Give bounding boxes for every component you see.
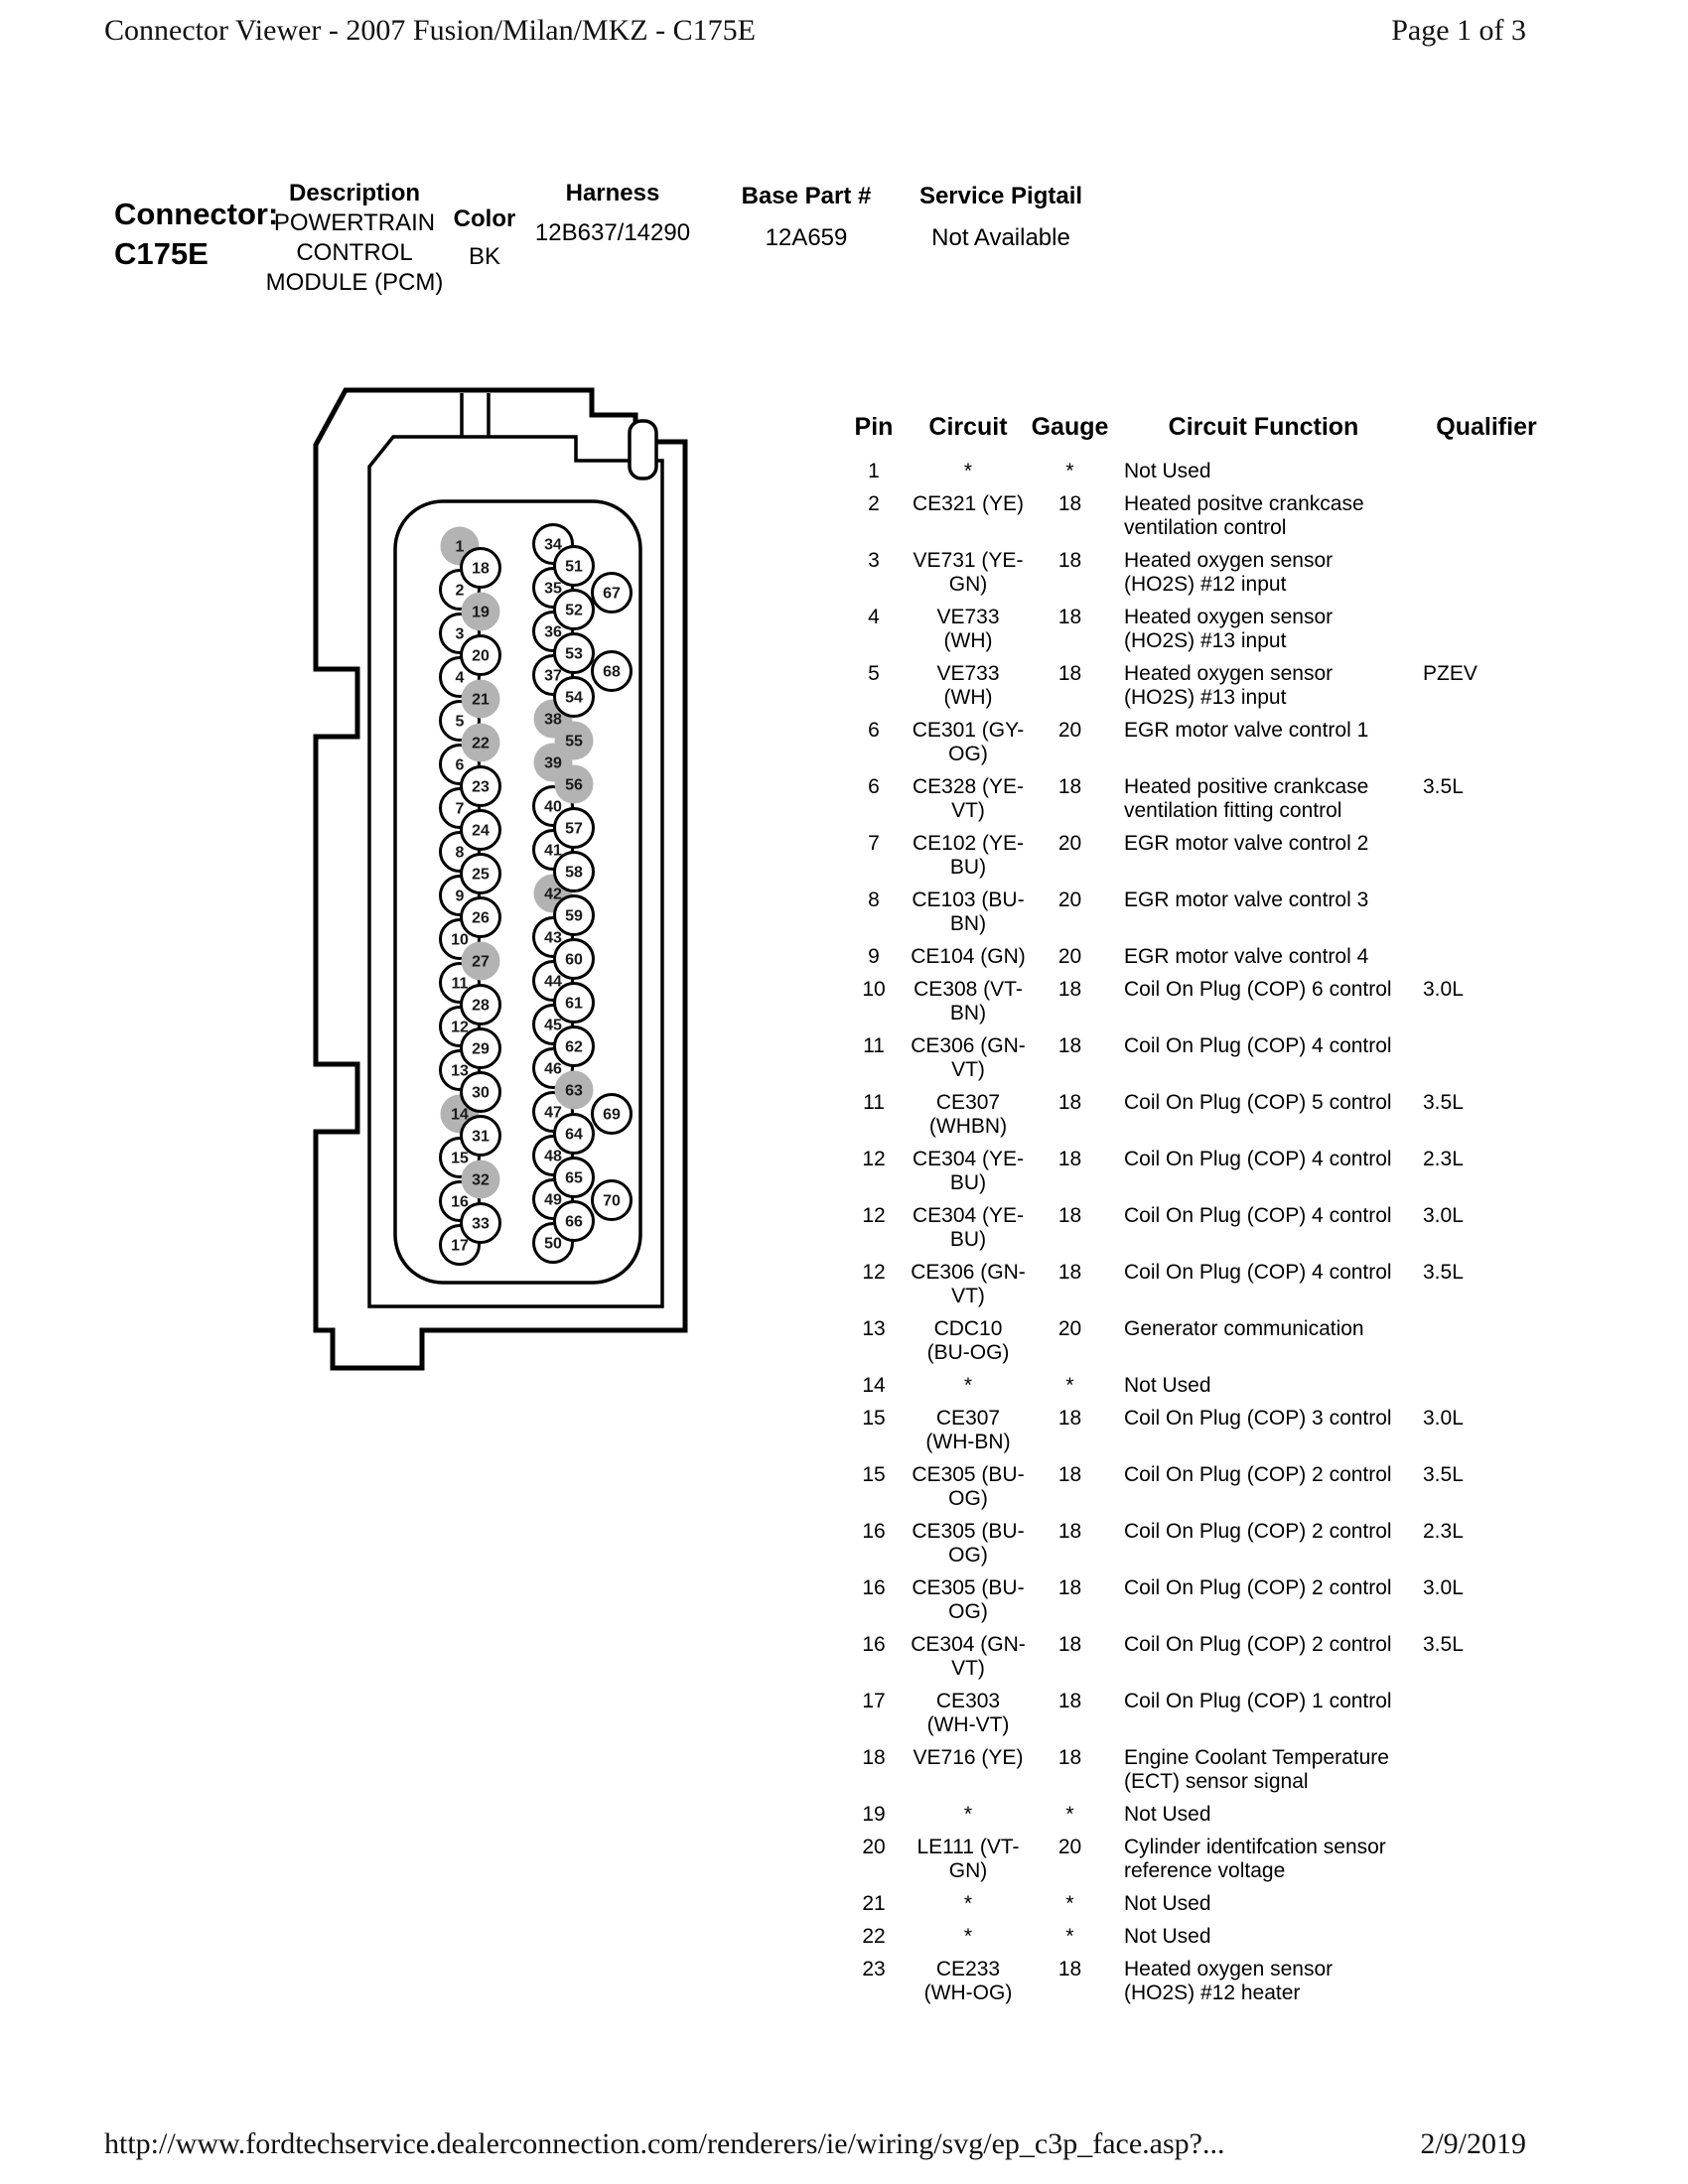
function-cell: EGR motor valve control 4 [1112, 945, 1415, 969]
function-cell: Engine Coolant Temperature (ECT) sensor … [1112, 1746, 1415, 1794]
qualifier-cell [1415, 1803, 1558, 1827]
pin-cell: 11 [839, 1091, 909, 1139]
table-row: 11CE307 (WHBN)18Coil On Plug (COP) 5 con… [839, 1091, 1558, 1139]
pin-54: 54 [555, 678, 594, 717]
pin-cell: 16 [839, 1576, 909, 1624]
pin-60: 60 [555, 940, 594, 979]
table-row: 10CE308 (VT-BN)18Coil On Plug (COP) 6 co… [839, 978, 1558, 1025]
circuit-cell: * [909, 1803, 1028, 1827]
pin-9-number: 9 [456, 888, 465, 905]
pin-63-number: 63 [565, 1083, 583, 1100]
gauge-cell: 20 [1028, 719, 1112, 766]
pin-cell: 16 [839, 1633, 909, 1681]
function-cell: Heated oxygen sensor (HO2S) #13 input [1112, 606, 1415, 653]
table-row: 3VE731 (YE-GN)18Heated oxygen sensor (HO… [839, 549, 1558, 597]
pin-64: 64 [555, 1115, 594, 1154]
pin-12-number: 12 [451, 1020, 469, 1036]
pin-cell: 14 [839, 1374, 909, 1398]
pin-37-number: 37 [544, 668, 562, 685]
function-cell: EGR motor valve control 2 [1112, 832, 1415, 880]
qualifier-cell [1415, 1892, 1558, 1916]
circuit-cell: CE305 (BU-OG) [909, 1463, 1028, 1511]
pin-68-number: 68 [603, 664, 621, 681]
table-row: 21**Not Used [839, 1892, 1558, 1916]
pin-43-number: 43 [544, 930, 562, 947]
print-footer-date: 2/9/2019 [1420, 2127, 1526, 2161]
table-row: 4VE733 (WH)18Heated oxygen sensor (HO2S)… [839, 606, 1558, 653]
pin-cell: 11 [839, 1034, 909, 1082]
pin-35-number: 35 [544, 581, 562, 598]
pin-1-number: 1 [456, 539, 465, 556]
pin-cell: 4 [839, 606, 909, 653]
pin-cell: 2 [839, 492, 909, 540]
pin-cell: 12 [839, 1261, 909, 1308]
pin-cell: 15 [839, 1463, 909, 1511]
pin-45-number: 45 [544, 1018, 562, 1034]
gauge-cell: 18 [1028, 1148, 1112, 1195]
pin-42-number: 42 [544, 887, 562, 903]
pin-53-number: 53 [565, 646, 583, 663]
pin-50-number: 50 [544, 1236, 562, 1253]
pin-52: 52 [555, 591, 594, 629]
header-qualifier: Qualifier [1415, 413, 1558, 442]
circuit-cell: CE303 (WH-VT) [909, 1690, 1028, 1737]
qualifier-cell [1415, 719, 1558, 766]
table-row: 9CE104 (GN)20EGR motor valve control 4 [839, 945, 1558, 969]
pin-44-number: 44 [544, 974, 562, 991]
qualifier-cell [1415, 549, 1558, 597]
table-row: 19**Not Used [839, 1803, 1558, 1827]
pin-26: 26 [462, 898, 500, 937]
pin-49-number: 49 [544, 1192, 562, 1209]
gauge-cell: 18 [1028, 775, 1112, 823]
circuit-cell: CDC10 (BU-OG) [909, 1317, 1028, 1365]
function-cell: Coil On Plug (COP) 2 control [1112, 1520, 1415, 1568]
function-cell: Coil On Plug (COP) 5 control [1112, 1091, 1415, 1139]
table-row: 15CE305 (BU-OG)18Coil On Plug (COP) 2 co… [839, 1463, 1558, 1511]
pin-53: 53 [555, 634, 594, 673]
pin-16-number: 16 [451, 1194, 469, 1211]
pin-cell: 15 [839, 1407, 909, 1454]
gauge-cell: 20 [1028, 945, 1112, 969]
table-row: 6CE328 (YE-VT)18Heated positive crankcas… [839, 775, 1558, 823]
qualifier-cell: 2.3L [1415, 1148, 1558, 1195]
pin-cell: 10 [839, 978, 909, 1025]
gauge-cell: 18 [1028, 1463, 1112, 1511]
circuit-cell: CE304 (YE-BU) [909, 1148, 1028, 1195]
pin-20: 20 [462, 636, 500, 675]
pin-55: 55 [555, 722, 594, 760]
function-cell: Coil On Plug (COP) 4 control [1112, 1261, 1415, 1308]
circuit-cell: VE731 (YE-GN) [909, 549, 1028, 597]
pin-cell: 13 [839, 1317, 909, 1365]
pin-29: 29 [462, 1029, 500, 1068]
circuit-cell: CE307 (WH-BN) [909, 1407, 1028, 1454]
table-row: 12CE306 (GN-VT)18Coil On Plug (COP) 4 co… [839, 1261, 1558, 1308]
pin-32: 32 [462, 1160, 500, 1199]
function-cell: Heated oxygen sensor (HO2S) #13 input [1112, 662, 1415, 710]
header-pin: Pin [839, 413, 909, 442]
qualifier-cell [1415, 1746, 1558, 1794]
pin-54-number: 54 [565, 690, 583, 707]
header-gauge: Gauge [1028, 413, 1112, 442]
pin-cell: 12 [839, 1204, 909, 1252]
circuit-cell: CE306 (GN-VT) [909, 1034, 1028, 1082]
pin-68: 68 [593, 652, 632, 691]
gauge-cell: * [1028, 1803, 1112, 1827]
pin-18: 18 [462, 549, 500, 588]
table-row: 23CE233 (WH-OG)18Heated oxygen sensor (H… [839, 1958, 1558, 2005]
pin-65: 65 [555, 1159, 594, 1197]
gauge-cell: 18 [1028, 662, 1112, 710]
pin-51-number: 51 [565, 559, 583, 576]
circuit-cell: * [909, 460, 1028, 483]
function-cell: Not Used [1112, 1374, 1415, 1398]
function-cell: Coil On Plug (COP) 2 control [1112, 1463, 1415, 1511]
table-row: 18VE716 (YE)18Engine Coolant Temperature… [839, 1746, 1558, 1794]
pin-cell: 5 [839, 662, 909, 710]
pin-cell: 3 [839, 549, 909, 597]
qualifier-cell [1415, 1836, 1558, 1883]
function-cell: Coil On Plug (COP) 2 control [1112, 1576, 1415, 1624]
pin-36-number: 36 [544, 624, 562, 641]
function-cell: Heated positve crankcase ventilation con… [1112, 492, 1415, 540]
qualifier-cell: 2.3L [1415, 1520, 1558, 1568]
qualifier-cell [1415, 888, 1558, 936]
gauge-cell: 18 [1028, 1091, 1112, 1139]
pin-66-number: 66 [565, 1214, 583, 1231]
qualifier-cell [1415, 1317, 1558, 1365]
header-circuit: Circuit [909, 413, 1028, 442]
circuit-cell: CE306 (GN-VT) [909, 1261, 1028, 1308]
qualifier-cell [1415, 945, 1558, 969]
pin-3-number: 3 [456, 626, 465, 643]
table-row: 7CE102 (YE-BU)20EGR motor valve control … [839, 832, 1558, 880]
pin-70: 70 [593, 1181, 632, 1220]
qualifier-cell [1415, 1958, 1558, 2005]
circuit-cell: CE304 (GN-VT) [909, 1633, 1028, 1681]
pin-32-number: 32 [472, 1172, 490, 1189]
pin-8-number: 8 [456, 845, 465, 862]
pin-cell: 6 [839, 719, 909, 766]
gauge-cell: 18 [1028, 1690, 1112, 1737]
pin-57-number: 57 [565, 821, 583, 838]
pin-11-number: 11 [452, 976, 469, 993]
function-cell: Cylinder identifcation sensor reference … [1112, 1836, 1415, 1883]
gauge-cell: * [1028, 1892, 1112, 1916]
gauge-cell: 18 [1028, 1261, 1112, 1308]
pin-cell: 17 [839, 1690, 909, 1737]
circuit-cell: CE103 (BU-BN) [909, 888, 1028, 936]
pin-table: Pin Circuit Gauge Circuit Function Quali… [839, 413, 1558, 2014]
table-row: 12CE304 (YE-BU)18Coil On Plug (COP) 4 co… [839, 1204, 1558, 1252]
pin-10-number: 10 [451, 932, 469, 949]
function-cell: Coil On Plug (COP) 6 control [1112, 978, 1415, 1025]
gauge-cell: * [1028, 1374, 1112, 1398]
pin-6-number: 6 [456, 757, 465, 774]
gauge-cell: 18 [1028, 1520, 1112, 1568]
pin-62: 62 [555, 1027, 594, 1066]
circuit-cell: CE233 (WH-OG) [909, 1958, 1028, 2005]
table-row: 13CDC10 (BU-OG)20Generator communication [839, 1317, 1558, 1365]
pin-4-number: 4 [456, 670, 465, 687]
table-row: 20LE111 (VT-GN)20Cylinder identifcation … [839, 1836, 1558, 1883]
print-footer-url: http://www.fordtechservice.dealerconnect… [104, 2127, 1224, 2161]
circuit-cell: CE104 (GN) [909, 945, 1028, 969]
function-cell: Coil On Plug (COP) 4 control [1112, 1148, 1415, 1195]
gauge-cell: 20 [1028, 888, 1112, 936]
pin-2-number: 2 [456, 583, 465, 600]
table-row: 1**Not Used [839, 460, 1558, 483]
pin-55-number: 55 [565, 734, 583, 751]
function-cell: Not Used [1112, 1925, 1415, 1949]
table-row: 17CE303 (WH-VT)18Coil On Plug (COP) 1 co… [839, 1690, 1558, 1737]
function-cell: Not Used [1112, 460, 1415, 483]
function-cell: Heated oxygen sensor (HO2S) #12 heater [1112, 1958, 1415, 2005]
pin-cell: 21 [839, 1892, 909, 1916]
pin-table-body: 1**Not Used2CE321 (YE)18Heated positve c… [839, 460, 1558, 2005]
pin-30-number: 30 [472, 1085, 490, 1102]
qualifier-cell: 3.5L [1415, 1091, 1558, 1139]
gauge-cell: 20 [1028, 832, 1112, 880]
gauge-cell: 18 [1028, 1034, 1112, 1082]
gauge-cell: 18 [1028, 1204, 1112, 1252]
pin-70-number: 70 [603, 1193, 621, 1210]
pin-24-number: 24 [472, 823, 490, 840]
pin-62-number: 62 [565, 1039, 583, 1056]
print-footer: http://www.fordtechservice.dealerconnect… [104, 2127, 1526, 2161]
table-row: 14**Not Used [839, 1374, 1558, 1398]
pin-25-number: 25 [472, 867, 490, 884]
pin-39-number: 39 [544, 755, 562, 772]
gauge-cell: * [1028, 1925, 1112, 1949]
pin-29-number: 29 [472, 1041, 490, 1058]
pin-58-number: 58 [565, 865, 583, 882]
pin-57: 57 [555, 809, 594, 848]
pin-47-number: 47 [544, 1105, 562, 1122]
pin-52-number: 52 [565, 603, 583, 619]
qualifier-cell: 3.0L [1415, 1407, 1558, 1454]
pin-33: 33 [462, 1204, 500, 1243]
pin-15-number: 15 [451, 1151, 469, 1167]
pin-60-number: 60 [565, 952, 583, 969]
pin-19: 19 [462, 593, 500, 631]
function-cell: EGR motor valve control 1 [1112, 719, 1415, 766]
table-row: 8CE103 (BU-BN)20EGR motor valve control … [839, 888, 1558, 936]
pin-41-number: 41 [544, 843, 562, 860]
qualifier-cell: 3.5L [1415, 775, 1558, 823]
pin-46-number: 46 [544, 1061, 562, 1078]
pin-65-number: 65 [565, 1170, 583, 1187]
table-row: 5VE733 (WH)18Heated oxygen sensor (HO2S)… [839, 662, 1558, 710]
circuit-cell: CE307 (WHBN) [909, 1091, 1028, 1139]
qualifier-cell [1415, 1034, 1558, 1082]
gauge-cell: 18 [1028, 1407, 1112, 1454]
pin-21-number: 21 [472, 692, 490, 709]
pin-27-number: 27 [472, 954, 490, 971]
pin-22: 22 [462, 724, 500, 762]
pin-56-number: 56 [565, 777, 583, 794]
qualifier-cell [1415, 1925, 1558, 1949]
pin-67: 67 [593, 574, 632, 613]
pin-18-number: 18 [472, 561, 490, 578]
circuit-cell: CE305 (BU-OG) [909, 1520, 1028, 1568]
circuit-cell: CE321 (YE) [909, 492, 1028, 540]
circuit-cell: LE111 (VT-GN) [909, 1836, 1028, 1883]
pin-59: 59 [555, 896, 594, 935]
pin-table-header: Pin Circuit Gauge Circuit Function Quali… [839, 413, 1558, 442]
pin-27: 27 [462, 942, 500, 981]
pin-17-number: 17 [451, 1238, 469, 1255]
function-cell: Generator communication [1112, 1317, 1415, 1365]
qualifier-cell: PZEV [1415, 662, 1558, 710]
table-row: 12CE304 (YE-BU)18Coil On Plug (COP) 4 co… [839, 1148, 1558, 1195]
printed-page: Connector Viewer - 2007 Fusion/Milan/MKZ… [0, 0, 1688, 2184]
pin-cell: 6 [839, 775, 909, 823]
gauge-cell: 18 [1028, 1633, 1112, 1681]
pin-cell: 20 [839, 1836, 909, 1883]
pin-31: 31 [462, 1117, 500, 1156]
function-cell: Coil On Plug (COP) 3 control [1112, 1407, 1415, 1454]
pin-cell: 18 [839, 1746, 909, 1794]
pin-67-number: 67 [603, 586, 621, 603]
pin-cell: 9 [839, 945, 909, 969]
pin-28-number: 28 [472, 998, 490, 1015]
qualifier-cell: 3.0L [1415, 978, 1558, 1025]
circuit-cell: CE328 (YE-VT) [909, 775, 1028, 823]
function-cell: EGR motor valve control 3 [1112, 888, 1415, 936]
pin-cavity [395, 501, 640, 1283]
pin-5-number: 5 [456, 714, 465, 731]
pin-69: 69 [593, 1095, 632, 1134]
function-cell: Not Used [1112, 1803, 1415, 1827]
gauge-cell: 18 [1028, 606, 1112, 653]
circuit-cell: CE304 (YE-BU) [909, 1204, 1028, 1252]
table-row: 16CE304 (GN-VT)18Coil On Plug (COP) 2 co… [839, 1633, 1558, 1681]
gauge-cell: 20 [1028, 1836, 1112, 1883]
pin-69-number: 69 [603, 1107, 621, 1124]
pin-cell: 12 [839, 1148, 909, 1195]
pin-25: 25 [462, 855, 500, 893]
circuit-cell: * [909, 1892, 1028, 1916]
qualifier-cell: 3.0L [1415, 1204, 1558, 1252]
pin-56: 56 [555, 765, 594, 804]
circuit-cell: CE305 (BU-OG) [909, 1576, 1028, 1624]
pin-cell: 22 [839, 1925, 909, 1949]
gauge-cell: 18 [1028, 1746, 1112, 1794]
pin-19-number: 19 [472, 605, 490, 621]
pin-20-number: 20 [472, 648, 490, 665]
pin-31-number: 31 [472, 1129, 490, 1146]
pin-cell: 16 [839, 1520, 909, 1568]
gauge-cell: 20 [1028, 1317, 1112, 1365]
function-cell: Coil On Plug (COP) 4 control [1112, 1034, 1415, 1082]
gauge-cell: 18 [1028, 492, 1112, 540]
pin-cell: 1 [839, 460, 909, 483]
pin-59-number: 59 [565, 908, 583, 925]
function-cell: Coil On Plug (COP) 1 control [1112, 1690, 1415, 1737]
qualifier-cell [1415, 460, 1558, 483]
function-cell: Coil On Plug (COP) 2 control [1112, 1633, 1415, 1681]
pin-cell: 8 [839, 888, 909, 936]
qualifier-cell [1415, 832, 1558, 880]
gauge-cell: 18 [1028, 1576, 1112, 1624]
circuit-cell: VE716 (YE) [909, 1746, 1028, 1794]
table-row: 2CE321 (YE)18Heated positve crankcase ve… [839, 492, 1558, 540]
pin-7-number: 7 [456, 801, 465, 818]
pin-34-number: 34 [544, 537, 562, 554]
pin-28: 28 [462, 986, 500, 1024]
pin-cell: 7 [839, 832, 909, 880]
pin-13-number: 13 [451, 1063, 469, 1080]
pin-58: 58 [555, 853, 594, 891]
pin-14-number: 14 [451, 1107, 469, 1124]
table-row: 16CE305 (BU-OG)18Coil On Plug (COP) 2 co… [839, 1576, 1558, 1624]
circuit-cell: VE733 (WH) [909, 606, 1028, 653]
pin-51: 51 [555, 547, 594, 586]
table-row: 11CE306 (GN-VT)18Coil On Plug (COP) 4 co… [839, 1034, 1558, 1082]
qualifier-cell [1415, 606, 1558, 653]
pin-cell: 19 [839, 1803, 909, 1827]
pin-cell: 23 [839, 1958, 909, 2005]
pin-38-number: 38 [544, 712, 562, 729]
qualifier-cell: 3.5L [1415, 1261, 1558, 1308]
pin-30: 30 [462, 1073, 500, 1112]
pin-63: 63 [555, 1071, 594, 1110]
circuit-cell: CE301 (GY-OG) [909, 719, 1028, 766]
header-function: Circuit Function [1112, 413, 1415, 442]
table-row: 22**Not Used [839, 1925, 1558, 1949]
circuit-cell: * [909, 1374, 1028, 1398]
circuit-cell: VE733 (WH) [909, 662, 1028, 710]
gauge-cell: * [1028, 460, 1112, 483]
qualifier-cell: 3.5L [1415, 1633, 1558, 1681]
gauge-cell: 18 [1028, 1958, 1112, 2005]
pin-23-number: 23 [472, 779, 490, 796]
function-cell: Heated positive crankcase ventilation fi… [1112, 775, 1415, 823]
function-cell: Not Used [1112, 1892, 1415, 1916]
pin-40-number: 40 [544, 799, 562, 816]
circuit-cell: CE102 (YE-BU) [909, 832, 1028, 880]
pin-33-number: 33 [472, 1216, 490, 1233]
table-row: 16CE305 (BU-OG)18Coil On Plug (COP) 2 co… [839, 1520, 1558, 1568]
circuit-cell: * [909, 1925, 1028, 1949]
pin-22-number: 22 [472, 736, 490, 752]
pin-66: 66 [555, 1202, 594, 1241]
pin-23: 23 [462, 767, 500, 806]
qualifier-cell [1415, 1690, 1558, 1737]
gauge-cell: 18 [1028, 549, 1112, 597]
function-cell: Coil On Plug (COP) 4 control [1112, 1204, 1415, 1252]
table-row: 6CE301 (GY-OG)20EGR motor valve control … [839, 719, 1558, 766]
gauge-cell: 18 [1028, 978, 1112, 1025]
pin-48-number: 48 [544, 1149, 562, 1165]
latch-tab [630, 421, 656, 478]
table-row: 15CE307 (WH-BN)18Coil On Plug (COP) 3 co… [839, 1407, 1558, 1454]
circuit-cell: CE308 (VT-BN) [909, 978, 1028, 1025]
pin-26-number: 26 [472, 910, 490, 927]
qualifier-cell [1415, 1374, 1558, 1398]
pin-61-number: 61 [565, 996, 583, 1013]
qualifier-cell [1415, 492, 1558, 540]
pin-24: 24 [462, 811, 500, 850]
qualifier-cell: 3.5L [1415, 1463, 1558, 1511]
pin-21: 21 [462, 680, 500, 719]
qualifier-cell: 3.0L [1415, 1576, 1558, 1624]
pin-64-number: 64 [565, 1127, 583, 1144]
function-cell: Heated oxygen sensor (HO2S) #12 input [1112, 549, 1415, 597]
pin-61: 61 [555, 984, 594, 1023]
